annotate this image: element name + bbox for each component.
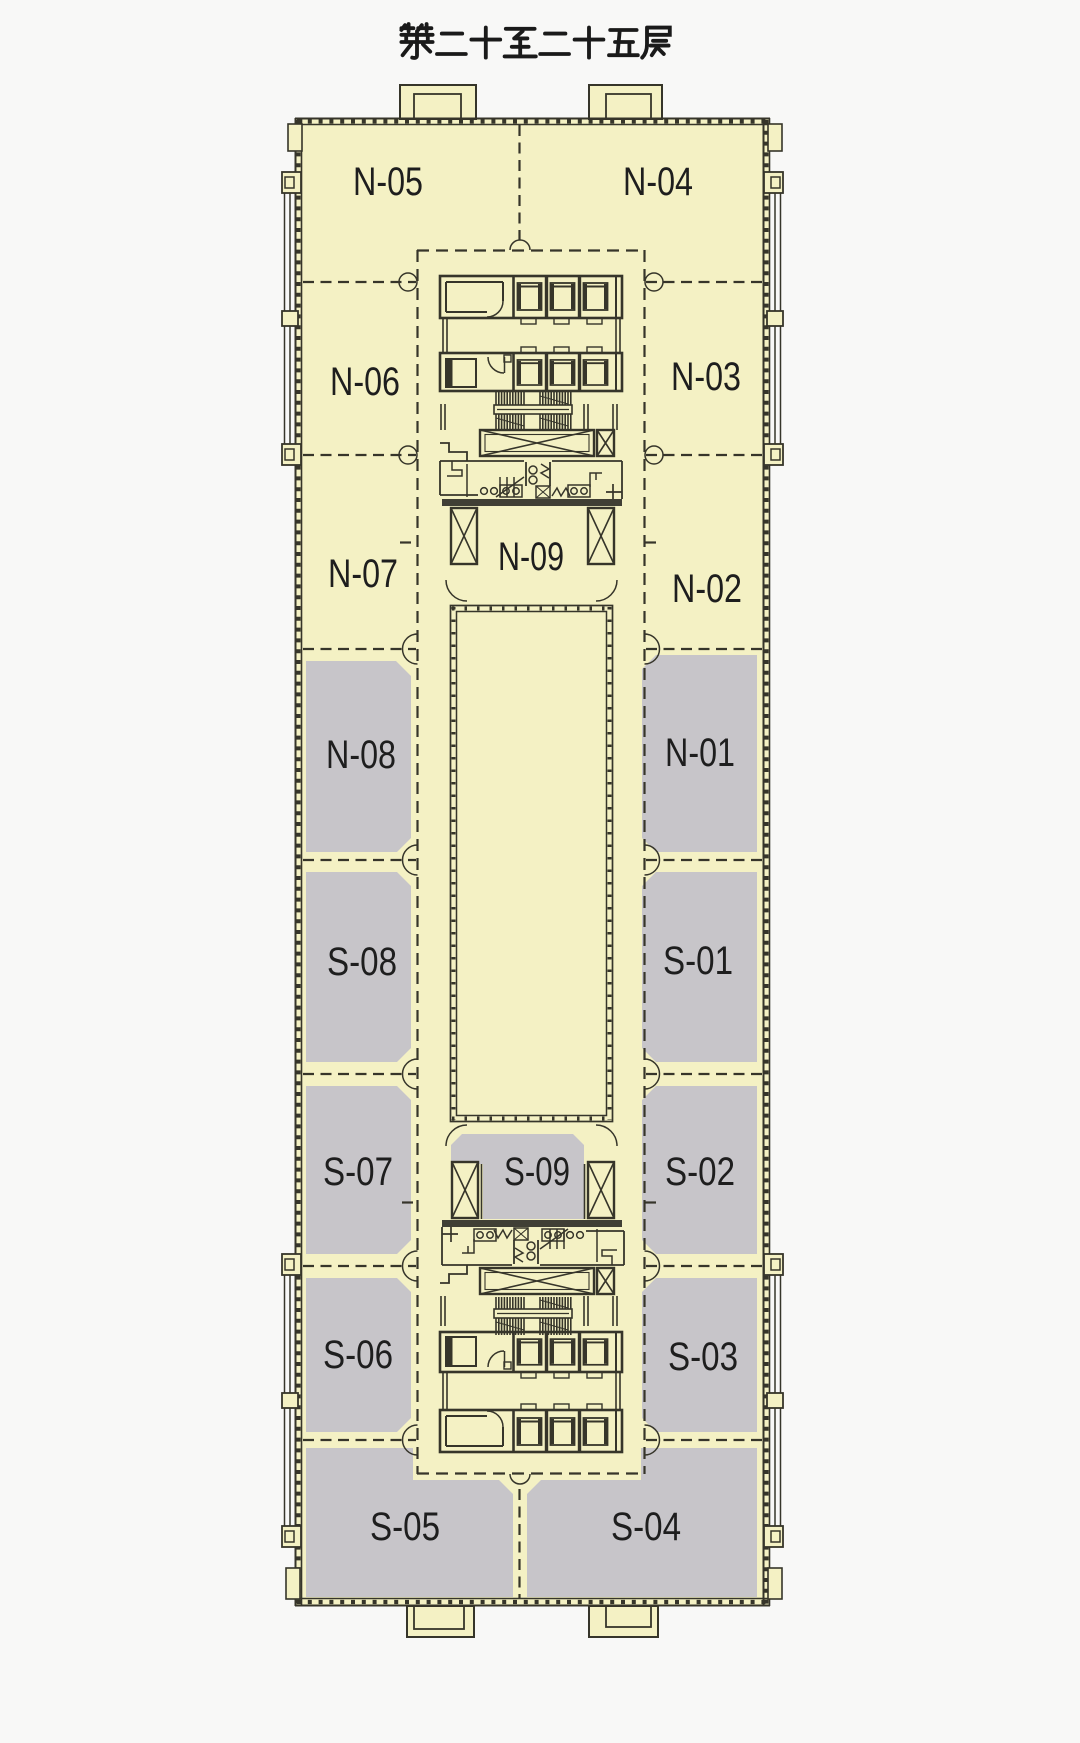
- svg-text:S-07: S-07: [323, 1150, 393, 1194]
- svg-text:S-01: S-01: [663, 939, 733, 983]
- svg-text:S-04: S-04: [611, 1505, 681, 1549]
- svg-text:N-08: N-08: [326, 733, 396, 777]
- svg-text:N-09: N-09: [498, 535, 564, 579]
- svg-text:N-03: N-03: [671, 355, 741, 399]
- svg-text:N-07: N-07: [328, 552, 398, 596]
- svg-text:S-09: S-09: [504, 1150, 570, 1194]
- svg-text:N-06: N-06: [330, 360, 400, 404]
- svg-text:S-02: S-02: [665, 1150, 735, 1194]
- svg-text:S-05: S-05: [370, 1505, 440, 1549]
- svg-text:N-02: N-02: [672, 567, 742, 611]
- svg-text:N-01: N-01: [665, 731, 735, 775]
- svg-text:S-06: S-06: [323, 1333, 393, 1377]
- svg-text:S-08: S-08: [327, 940, 397, 984]
- svg-text:N-04: N-04: [623, 160, 693, 204]
- svg-text:S-03: S-03: [668, 1335, 738, 1379]
- svg-text:N-05: N-05: [353, 160, 423, 204]
